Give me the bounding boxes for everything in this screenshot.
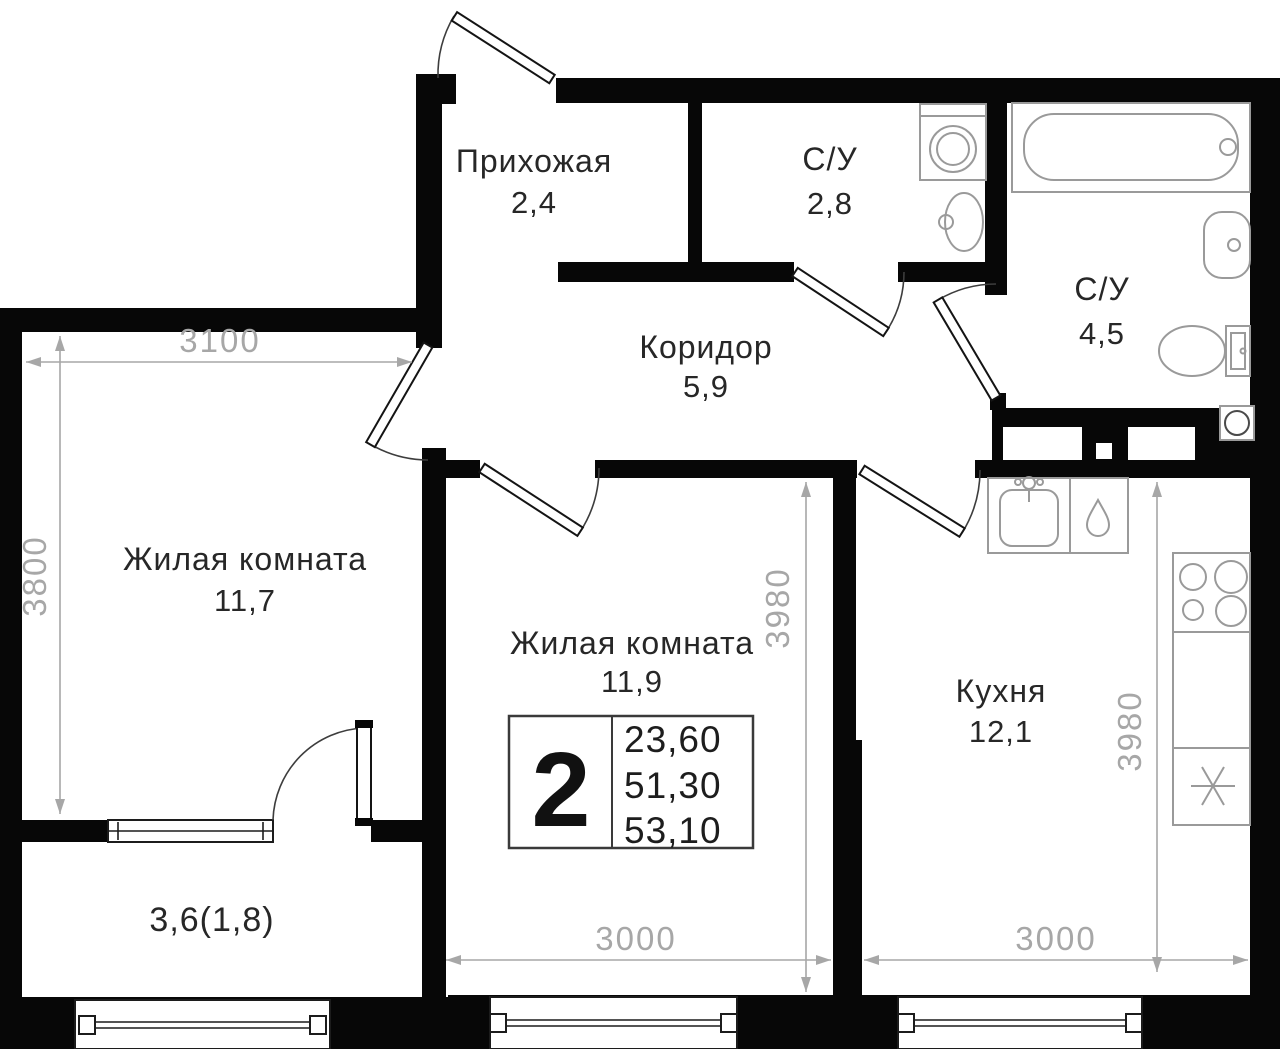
door-balcony-icon xyxy=(273,720,373,826)
door-living-room-2-icon xyxy=(479,464,599,536)
room-area-wc-small: 2,8 xyxy=(807,186,853,221)
toilet-icon xyxy=(1159,326,1250,376)
living-area-value: 23,60 xyxy=(624,719,722,760)
shaft-opening xyxy=(1128,427,1195,460)
room-area-corridor: 5,9 xyxy=(683,369,729,404)
room-label-wc-small: С/У xyxy=(802,141,857,177)
dimension-kitchen-width: 3000 xyxy=(1015,920,1096,957)
entrance-door-icon xyxy=(438,12,555,83)
room-area-wc-large: 4,5 xyxy=(1079,316,1125,351)
dimension-living1-depth: 3800 xyxy=(16,535,53,616)
wall-segment xyxy=(975,460,1280,478)
bathtub-icon xyxy=(1012,103,1250,192)
dimension-living1-width: 3100 xyxy=(179,322,260,359)
apartment-area-value: 51,30 xyxy=(624,765,722,806)
vent-fan-icon xyxy=(1220,406,1254,440)
wall-segment xyxy=(595,460,857,478)
wall-segment xyxy=(22,820,108,842)
shaft-opening-small xyxy=(1096,443,1112,459)
pedestal-sink-icon xyxy=(939,193,983,251)
wall-segment xyxy=(558,262,794,282)
door-wc-large-icon xyxy=(934,284,1001,401)
room-label-kitchen: Кухня xyxy=(956,673,1047,709)
wall-segment xyxy=(422,448,446,997)
shaft-opening xyxy=(1003,427,1082,460)
wall-segment xyxy=(1250,85,1280,1049)
wall-segment xyxy=(833,740,862,997)
room-label-living1: Жилая комната xyxy=(123,541,367,577)
washing-machine-icon xyxy=(920,104,986,180)
wall-segment xyxy=(371,820,424,842)
doors xyxy=(273,12,1000,826)
room-area-kitchen: 12,1 xyxy=(969,714,1033,749)
floor-plan-page: 3100 3800 3980 3000 3980 3000 Прихожая 2… xyxy=(0,0,1280,1049)
door-wc-small-icon xyxy=(792,268,904,336)
wall-sink-icon xyxy=(1204,212,1250,278)
wall-segment xyxy=(0,308,22,1049)
wall-segment xyxy=(442,460,480,478)
dimension-living2-depth: 3980 xyxy=(759,567,796,648)
total-area-value: 53,10 xyxy=(624,810,722,851)
rooms-count: 2 xyxy=(532,731,591,849)
cooktop-icon xyxy=(1180,561,1247,626)
dimension-living2-width: 3000 xyxy=(595,920,676,957)
room-label-living2: Жилая комната xyxy=(510,625,754,661)
snowflake-icon xyxy=(1191,767,1235,805)
room-label-corridor: Коридор xyxy=(639,329,772,365)
window-living-room-2-icon xyxy=(490,997,737,1049)
window-balcony-icon xyxy=(75,1000,330,1049)
room-area-living2: 11,9 xyxy=(601,664,663,699)
window-living-room-1-icon xyxy=(108,820,273,842)
room-label-hallway: Прихожая xyxy=(456,143,612,179)
room-label-wc-large: С/У xyxy=(1074,271,1129,307)
wall-segment xyxy=(416,74,442,336)
wall-segment xyxy=(985,100,1007,295)
wall-segment xyxy=(556,78,1280,103)
wall-segment xyxy=(440,78,456,103)
apartment-info-box: 2 23,60 51,30 53,10 xyxy=(509,716,753,851)
water-drop-icon xyxy=(1087,500,1109,536)
room-area-hallway: 2,4 xyxy=(511,185,557,220)
window-kitchen-icon xyxy=(898,997,1142,1049)
room-area-living1: 11,7 xyxy=(214,583,276,618)
door-kitchen-icon xyxy=(859,466,980,537)
wall-segment xyxy=(833,460,856,743)
floor-plan-svg: 3100 3800 3980 3000 3980 3000 Прихожая 2… xyxy=(0,0,1280,1049)
wall-segment xyxy=(688,100,702,282)
dimension-kitchen-depth: 3980 xyxy=(1111,690,1148,771)
room-area-balcony: 3,6(1,8) xyxy=(149,901,274,939)
